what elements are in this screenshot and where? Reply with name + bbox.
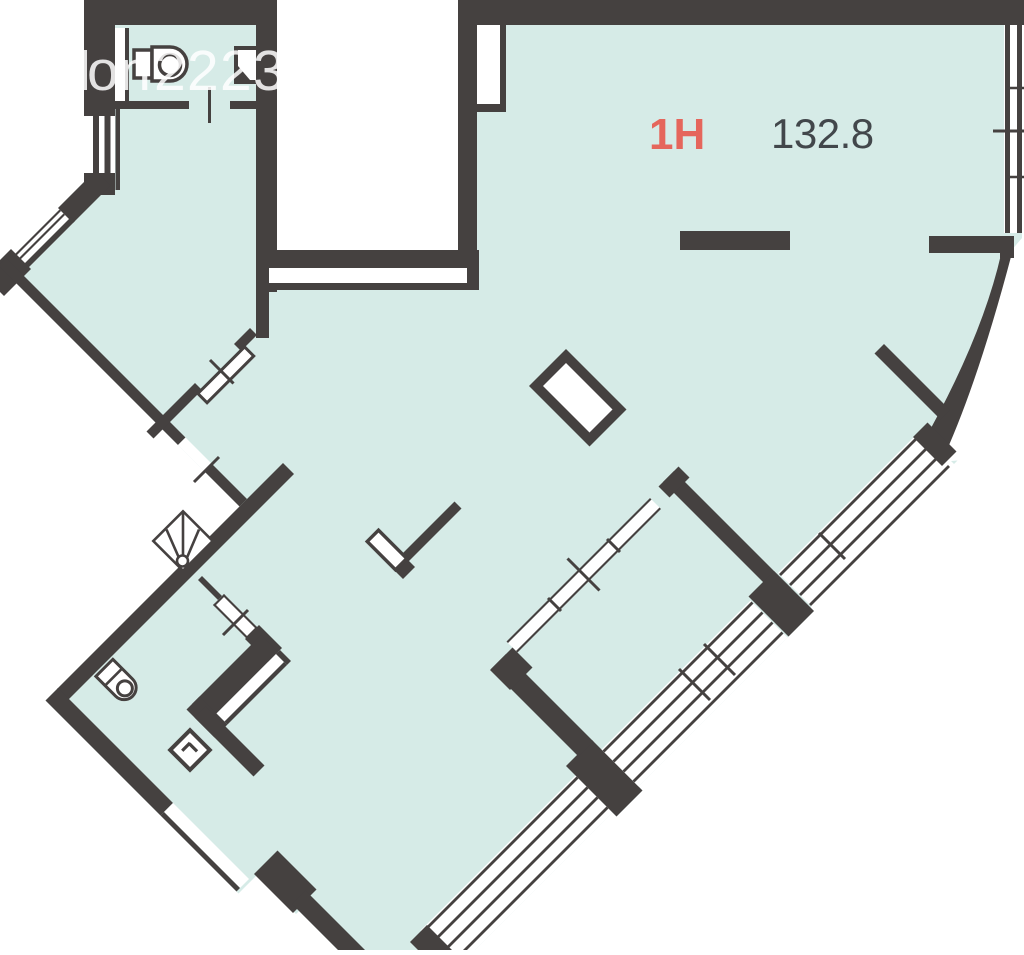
svg-text:132.8: 132.8	[771, 110, 874, 157]
svg-text:22236: 22236	[154, 39, 315, 103]
svg-text:on: on	[87, 39, 151, 103]
svg-text:1Н: 1Н	[649, 110, 705, 159]
